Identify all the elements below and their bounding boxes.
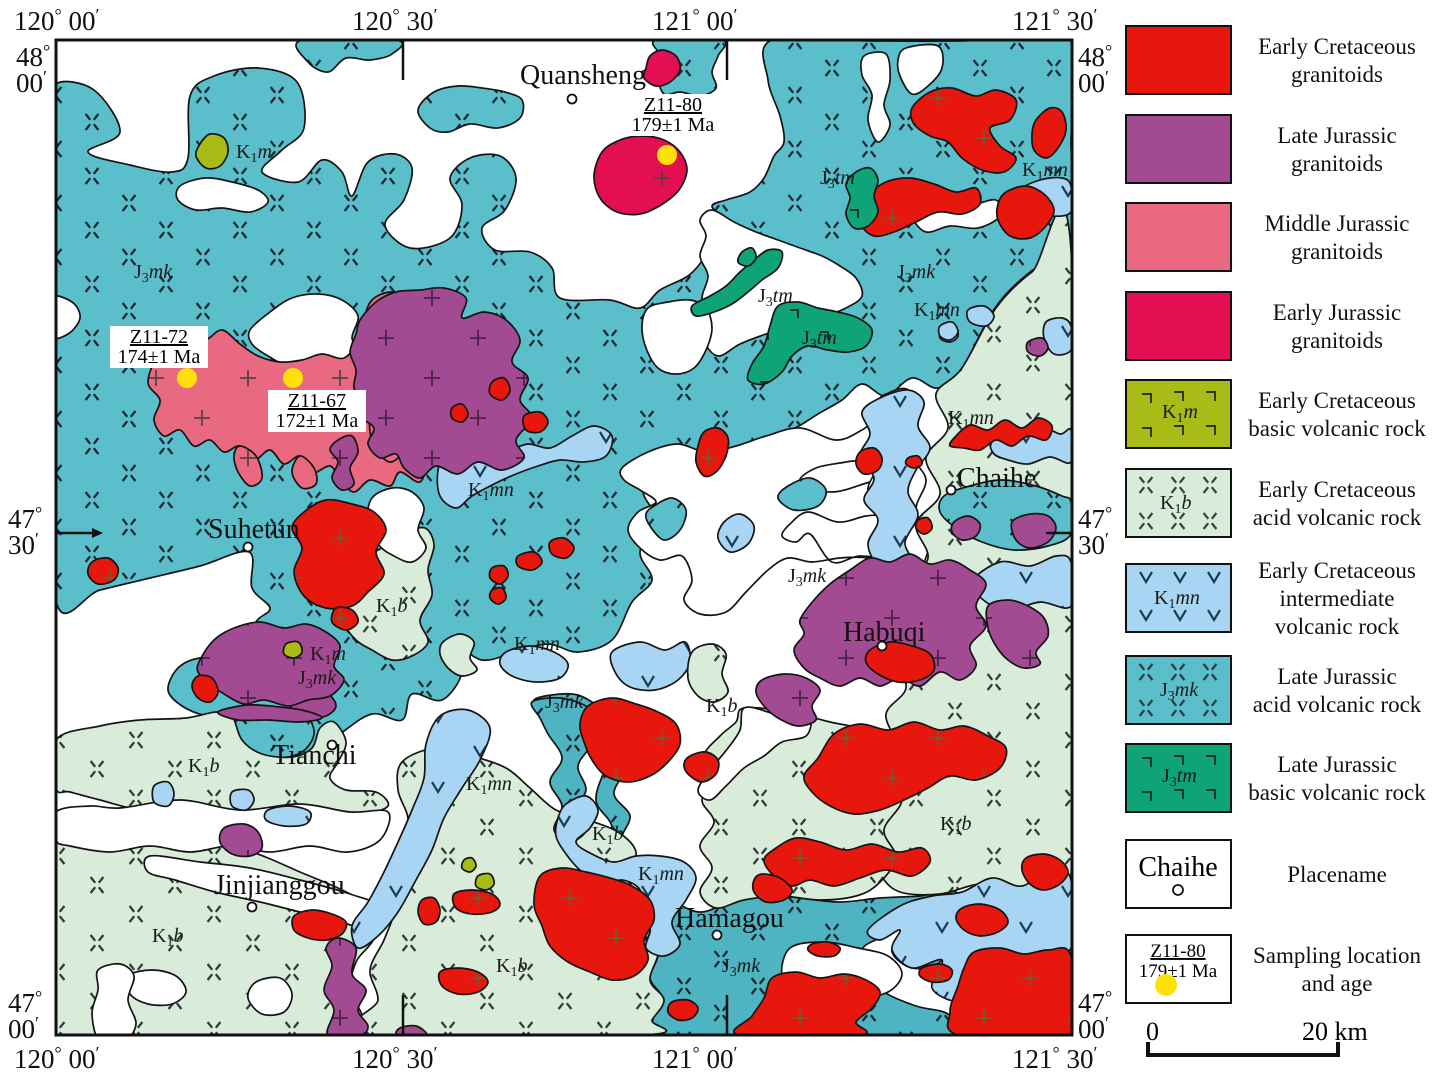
- svg-text:00′: 00′: [8, 1013, 39, 1044]
- svg-text:J3mk: J3mk: [788, 565, 827, 590]
- svg-text:Middle Jurassic: Middle Jurassic: [1264, 211, 1409, 236]
- svg-text:K1mn: K1mn: [914, 299, 960, 324]
- svg-text:K1mn: K1mn: [514, 633, 560, 658]
- svg-text:K1mn: K1mn: [1154, 587, 1200, 612]
- svg-text:172±1 Ma: 172±1 Ma: [276, 410, 359, 432]
- svg-text:Z11-80: Z11-80: [1150, 941, 1205, 962]
- svg-text:Z11-72: Z11-72: [130, 326, 188, 348]
- svg-text:120° 00′: 120° 00′: [14, 1043, 99, 1074]
- svg-text:intermediate: intermediate: [1280, 586, 1395, 611]
- svg-text:Early Cretaceous: Early Cretaceous: [1258, 477, 1416, 502]
- svg-text:Early Jurassic: Early Jurassic: [1273, 300, 1401, 325]
- svg-text:121° 00′: 121° 00′: [652, 5, 737, 36]
- svg-text:basic volcanic rock: basic volcanic rock: [1248, 416, 1426, 441]
- svg-text:30′: 30′: [8, 529, 39, 560]
- svg-text:Chaihe: Chaihe: [957, 463, 1036, 494]
- svg-text:J3tm: J3tm: [820, 167, 855, 192]
- svg-text:Jinjianggou: Jinjianggou: [214, 870, 345, 901]
- svg-text:Sampling location: Sampling location: [1253, 943, 1422, 968]
- svg-text:granitoids: granitoids: [1291, 239, 1383, 264]
- svg-text:J3mk: J3mk: [545, 691, 584, 716]
- svg-text:J3tm: J3tm: [1162, 765, 1197, 790]
- svg-text:J3tm: J3tm: [802, 327, 837, 352]
- svg-text:00′: 00′: [1078, 1013, 1109, 1044]
- svg-text:Early Cretaceous: Early Cretaceous: [1258, 388, 1416, 413]
- svg-text:basic volcanic rock: basic volcanic rock: [1248, 780, 1426, 805]
- svg-text:Suhetun: Suhetun: [208, 514, 300, 545]
- svg-text:Quansheng: Quansheng: [520, 60, 646, 91]
- svg-text:K1mn: K1mn: [948, 407, 994, 432]
- svg-text:0: 0: [1146, 1017, 1159, 1046]
- svg-text:179±1 Ma: 179±1 Ma: [632, 114, 715, 136]
- svg-text:Late Jurassic: Late Jurassic: [1277, 752, 1396, 777]
- svg-text:J3mk: J3mk: [298, 667, 337, 692]
- svg-text:acid volcanic rock: acid volcanic rock: [1253, 692, 1422, 717]
- svg-text:20 km: 20 km: [1302, 1017, 1368, 1046]
- svg-text:00′: 00′: [16, 67, 47, 98]
- svg-text:granitoids: granitoids: [1291, 62, 1383, 87]
- svg-text:K1mn: K1mn: [1022, 159, 1068, 184]
- svg-text:30′: 30′: [1078, 529, 1109, 560]
- svg-text:K1mn: K1mn: [638, 863, 684, 888]
- svg-text:120° 30′: 120° 30′: [352, 1043, 437, 1074]
- svg-text:174±1 Ma: 174±1 Ma: [118, 346, 201, 368]
- svg-text:Chaihe: Chaihe: [1138, 852, 1217, 883]
- svg-text:121° 30′: 121° 30′: [1012, 5, 1097, 36]
- svg-text:121° 30′: 121° 30′: [1012, 1043, 1097, 1074]
- svg-text:J3mk: J3mk: [897, 261, 936, 286]
- svg-text:Hamagou: Hamagou: [675, 903, 784, 934]
- svg-text:179±1 Ma: 179±1 Ma: [1139, 961, 1218, 982]
- svg-text:Early Cretaceous: Early Cretaceous: [1258, 558, 1416, 583]
- svg-text:J3mk: J3mk: [722, 955, 761, 980]
- svg-text:K1mn: K1mn: [468, 479, 514, 504]
- svg-text:Z11-80: Z11-80: [644, 94, 702, 116]
- svg-text:granitoids: granitoids: [1291, 328, 1383, 353]
- svg-text:Placename: Placename: [1287, 862, 1387, 887]
- svg-text:granitoids: granitoids: [1291, 151, 1383, 176]
- svg-text:J3mk: J3mk: [1160, 679, 1199, 704]
- svg-text:Early Cretaceous: Early Cretaceous: [1258, 34, 1416, 59]
- svg-text:00′: 00′: [1078, 67, 1109, 98]
- svg-text:J3tm: J3tm: [758, 285, 793, 310]
- svg-text:K1mn: K1mn: [466, 773, 512, 798]
- svg-text:and age: and age: [1302, 971, 1373, 996]
- svg-text:acid volcanic rock: acid volcanic rock: [1253, 505, 1422, 530]
- svg-text:121° 00′: 121° 00′: [652, 1043, 737, 1074]
- svg-text:Z11-67: Z11-67: [288, 390, 346, 412]
- svg-text:Late Jurassic: Late Jurassic: [1277, 123, 1396, 148]
- svg-text:Tianchi: Tianchi: [272, 740, 357, 771]
- svg-text:120° 30′: 120° 30′: [352, 5, 437, 36]
- svg-text:120° 00′: 120° 00′: [14, 5, 99, 36]
- svg-text:J3mk: J3mk: [134, 261, 173, 286]
- svg-text:volcanic rock: volcanic rock: [1275, 614, 1400, 639]
- svg-text:Late Jurassic: Late Jurassic: [1277, 664, 1396, 689]
